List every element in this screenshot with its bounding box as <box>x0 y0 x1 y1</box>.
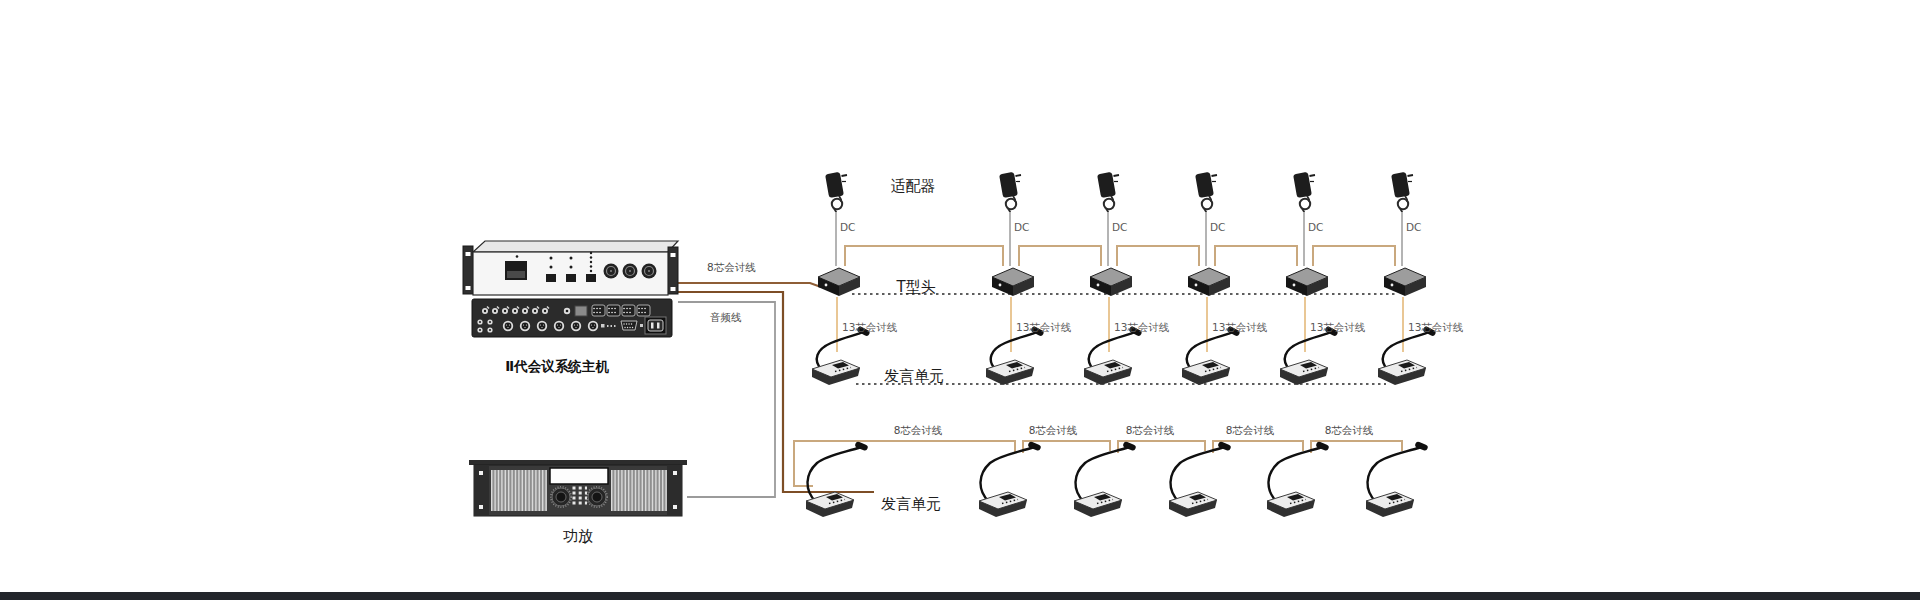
pin-header <box>607 305 620 316</box>
mic-unit-icon <box>812 326 871 385</box>
cable-label-8core: 8芯会讨线 <box>1325 424 1374 436</box>
mic-unit-icon <box>1366 441 1429 517</box>
cable-8core-thead-link <box>1215 246 1297 266</box>
rack-hole <box>466 252 471 256</box>
din-socket <box>520 321 530 331</box>
cable-label-13core: 13芯会讨线 <box>1408 321 1464 333</box>
screw <box>479 505 483 509</box>
amplifier-device <box>469 460 687 516</box>
host-knob <box>642 264 657 279</box>
t-connector-icon <box>1286 268 1328 296</box>
led-dot <box>590 270 592 272</box>
led-dot <box>570 257 573 260</box>
host-button <box>566 274 576 282</box>
cable-label-13core: 13芯会讨线 <box>1212 321 1268 333</box>
dc-label: DC <box>1210 221 1225 233</box>
indicator <box>640 324 643 327</box>
amplifier-label: 功放 <box>563 527 593 545</box>
dc-label: DC <box>1308 221 1323 233</box>
screw <box>673 505 677 509</box>
led-dot <box>550 266 553 269</box>
led-dot <box>590 265 592 267</box>
t-connector-icon <box>1384 268 1426 296</box>
cable-label-8core: 8芯会讨线 <box>1126 424 1175 436</box>
mic-unit-icon <box>979 441 1042 517</box>
host-display-inner <box>507 271 525 278</box>
pin-header <box>592 305 605 316</box>
module-block <box>575 306 587 316</box>
host-label: Ⅱ代会议系统主机 <box>505 358 609 374</box>
pin-header <box>622 305 635 316</box>
cable-label-8core: 8芯会讨线 <box>1029 424 1078 436</box>
led-dot <box>570 266 573 269</box>
screw <box>479 471 483 475</box>
row-label-mic-bottom: 发言单元 <box>881 495 941 513</box>
cable-label-8core: 8芯会讨线 <box>894 424 943 436</box>
cable-label-13core: 13芯会讨线 <box>1310 321 1366 333</box>
host-knob <box>623 264 638 279</box>
dc-label: DC <box>1112 221 1127 233</box>
mic-unit-icon <box>1074 441 1137 517</box>
led-dot <box>516 255 519 258</box>
db9-connector <box>621 321 637 330</box>
host-button <box>586 274 596 282</box>
host-button <box>546 274 556 282</box>
rack-hole <box>466 286 471 290</box>
power-adapter-icon <box>1195 172 1217 212</box>
din-socket <box>571 321 581 331</box>
pin-header <box>637 305 650 316</box>
jack-center <box>566 310 569 313</box>
host-rear-panel <box>472 299 672 337</box>
mic-unit-icon <box>1280 326 1339 385</box>
cable-label-audio: 音频线 <box>710 311 742 323</box>
t-connector-icon <box>992 268 1034 296</box>
footer-bar <box>0 592 1920 600</box>
cable-label-13core: 13芯会讨线 <box>1114 321 1170 333</box>
rack-hole <box>671 253 676 257</box>
t-connector-icon <box>1188 268 1230 296</box>
diagram-canvas: 8芯会讨线 音频线 适配器 T型头 发言单元 发言单元 Ⅱ代会议系统主机 功放 … <box>0 0 1920 600</box>
cable-8core-thead-link <box>1019 246 1101 266</box>
cable-8core-host-to-thead <box>678 283 821 287</box>
power-adapter-icon <box>825 172 847 212</box>
cable-label-13core: 13芯会讨线 <box>1016 321 1072 333</box>
amp-display <box>550 468 608 484</box>
dc-label: DC <box>1014 221 1029 233</box>
mic-unit-icon <box>1267 441 1330 517</box>
t-connector-icon <box>818 268 860 296</box>
cable-label-8core: 8芯会讨线 <box>1226 424 1275 436</box>
din-socket <box>537 321 547 331</box>
row-label-adapter: 适配器 <box>891 177 936 195</box>
host-top-face <box>473 241 678 252</box>
cable-8core-thead-link <box>1117 246 1199 266</box>
mic-unit-icon <box>1378 326 1437 385</box>
cable-8core-thead-link <box>1313 246 1395 266</box>
cable-audio-host-to-amp <box>678 302 775 497</box>
cable-label-13core: 13芯会讨线 <box>842 321 898 333</box>
power-adapter-icon <box>1293 172 1315 212</box>
rack-hole <box>671 287 676 291</box>
dc-label: DC <box>1406 221 1421 233</box>
cable-8core-thead-link <box>845 246 1003 266</box>
din-socket <box>554 321 564 331</box>
t-connector-icon <box>1090 268 1132 296</box>
mic-unit-icon <box>1182 326 1241 385</box>
power-inlet <box>645 317 666 334</box>
power-adapter-icon <box>999 172 1021 212</box>
led-dot <box>590 261 592 263</box>
row-label-mic-mid: 发言单元 <box>884 367 944 385</box>
host-front-panel <box>463 241 678 295</box>
cable-label-8core-host: 8芯会讨线 <box>707 261 756 273</box>
mic-unit-icon <box>986 326 1045 385</box>
dc-label: DC <box>840 221 855 233</box>
din-socket <box>503 321 513 331</box>
din-socket <box>588 321 598 331</box>
mic-unit-icon <box>806 441 869 517</box>
indicator <box>601 324 605 328</box>
mic-unit-icon <box>1084 326 1143 385</box>
amp-top-lip <box>469 460 687 465</box>
row-label-thead: T型头 <box>895 278 935 296</box>
host-knob <box>604 264 619 279</box>
power-adapter-icon <box>1097 172 1119 212</box>
wiring-diagram-svg: 8芯会讨线 音频线 适配器 T型头 发言单元 发言单元 Ⅱ代会议系统主机 功放 … <box>0 0 1920 600</box>
led-dot <box>590 256 592 258</box>
power-adapter-icon <box>1391 172 1413 212</box>
led-dot <box>590 252 592 254</box>
screw <box>673 471 677 475</box>
led-dot <box>550 257 553 260</box>
mic-unit-icon <box>1169 441 1232 517</box>
